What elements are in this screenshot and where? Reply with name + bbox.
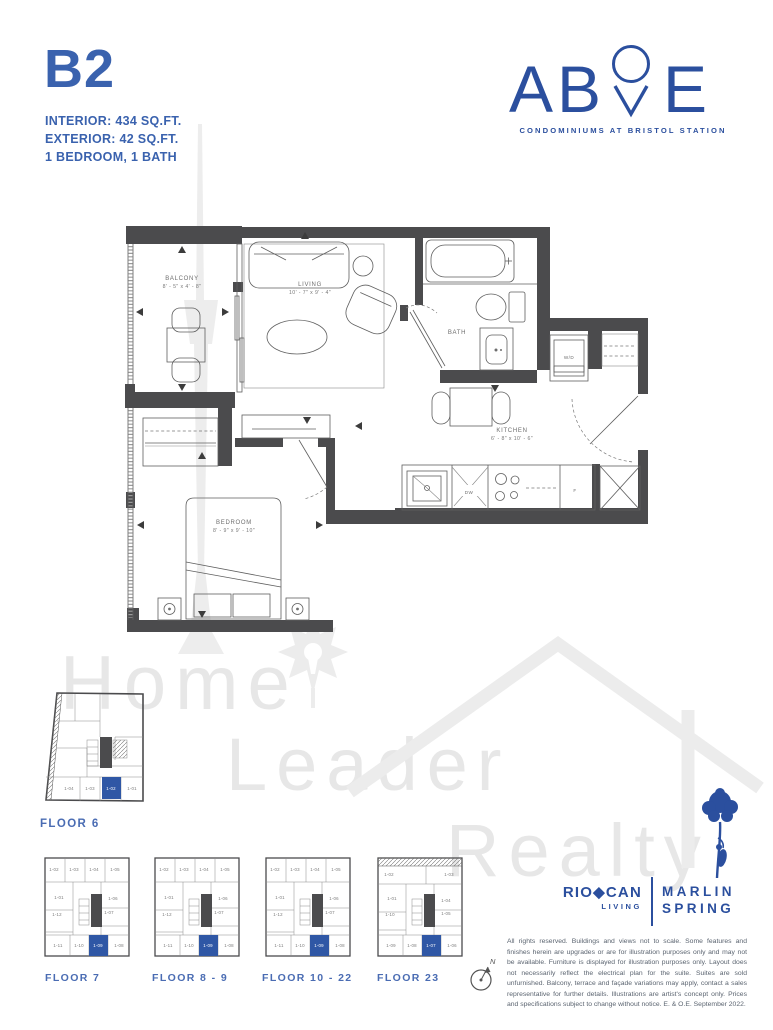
keyplan-unit: 1-06 <box>447 943 457 948</box>
keyplan-unit: 1-09 <box>203 943 213 948</box>
keyplan-unit: 1-03 <box>69 867 79 872</box>
keyplan-unit: 1-05 <box>110 867 120 872</box>
keyplan-unit: 1-03 <box>85 786 95 791</box>
keyplan-floor-10-22: 1-021-031-041-051-011-121-061-071-111-10… <box>264 856 352 958</box>
plan-walls <box>125 226 648 632</box>
keyplan-unit: 1-11 <box>274 943 284 948</box>
logo-letter-e: E <box>663 52 707 126</box>
kitchen-counter <box>402 465 595 510</box>
balcony-table-set <box>167 308 205 382</box>
keyplan-unit: 1-02 <box>270 867 280 872</box>
living-label: LIVING <box>298 282 322 288</box>
unit-exterior-sqft: EXTERIOR: 42 SQ.FT. <box>45 130 182 148</box>
sliding-door <box>235 244 244 392</box>
keyplan-floor-23-label: FLOOR 23 <box>377 972 440 984</box>
keyplan-unit: 1-10 <box>295 943 305 948</box>
bedroom-closet <box>143 418 218 466</box>
keyplan-unit: 1-10 <box>184 943 194 948</box>
nightstand-left <box>158 598 181 620</box>
keyplan-drawing: 1-021-031-041-051-011-121-061-071-111-10… <box>153 856 241 958</box>
keyplan-unit: 1-03 <box>444 872 454 877</box>
marlin-line1: MARLIN <box>662 883 735 900</box>
bed <box>186 498 281 619</box>
dining-table-set <box>432 388 510 426</box>
media-console <box>242 415 330 438</box>
marlin-line2: SPRING <box>662 900 735 917</box>
keyplan-unit: 1-11 <box>163 943 173 948</box>
unit-code: B2 <box>44 38 115 100</box>
tree-icon <box>696 786 744 880</box>
living-rug <box>244 244 384 388</box>
keyplan-unit: 1-06 <box>218 896 228 901</box>
coffee-table <box>267 320 327 354</box>
bath-door <box>406 305 445 368</box>
keyplan-unit-highlighted: 1-02 <box>106 786 116 791</box>
keyplan-floor-6: 1-04 1-03 1-02 1-01 <box>45 688 145 803</box>
kitchen-sink <box>407 471 447 506</box>
watermark-leader: Leader <box>226 728 510 802</box>
balcony-dims: 8' - 5" x 4' - 8" <box>163 284 202 290</box>
compass-north-label: N <box>490 957 496 966</box>
shaft-closet <box>600 466 640 510</box>
keyplan-unit: 1-04 <box>199 867 209 872</box>
riocan-diamond-icon: ◆ <box>593 884 606 901</box>
logo-letter-b: B <box>557 52 601 126</box>
keyplan-unit: 1-01 <box>275 895 285 900</box>
keyplan-unit: 1-01 <box>387 896 397 901</box>
keyplan-unit: 1-02 <box>159 867 169 872</box>
keyplan-drawing: 1-021-031-041-051-011-121-061-071-111-10… <box>264 856 352 958</box>
bedroom-door <box>299 440 327 499</box>
keyplan-floor-8-9: 1-021-031-041-051-011-121-061-071-111-10… <box>153 856 241 958</box>
keyplan-unit: 1-01 <box>54 895 64 900</box>
keyplan-unit: 1-12 <box>162 912 172 917</box>
bedroom-dims: 8' - 9" x 9' - 10" <box>213 528 255 534</box>
cooktop <box>496 474 520 501</box>
keyplan-unit: 1-02 <box>49 867 59 872</box>
armchair <box>342 281 401 338</box>
keyplan-unit: 1-01 <box>127 786 137 791</box>
riocan-living-logo: RIO◆CAN LIVING <box>538 883 642 911</box>
keyplan-floor-7: 1-021-031-041-051-011-121-061-071-111-10… <box>43 856 131 958</box>
keyplan-unit: 1-01 <box>164 895 174 900</box>
bathtub <box>426 240 514 282</box>
wd-label: W/D <box>564 355 574 360</box>
riocan-living: LIVING <box>538 902 642 911</box>
keyplan-unit: 1-11 <box>53 943 63 948</box>
kitchen-label: KITCHEN <box>496 428 527 434</box>
keyplan-unit: 1-07 <box>214 910 224 915</box>
compass-icon: N <box>462 952 506 998</box>
balcony-label: BALCONY <box>165 276 199 282</box>
keyplan-unit: 1-09 <box>386 943 396 948</box>
vanity-sink <box>480 328 513 370</box>
keyplan-unit: 1-08 <box>224 943 234 948</box>
legal-disclaimer: All rights reserved. Buildings and views… <box>507 937 747 1011</box>
keyplan-unit: 1-12 <box>273 912 283 917</box>
keyplan-unit: 1-09 <box>314 943 324 948</box>
keyplan-unit: 1-08 <box>114 943 124 948</box>
keyplan-floor-23: 1-021-031-011-101-041-051-091-081-071-06 <box>376 856 464 958</box>
toilet <box>476 292 525 322</box>
riocan-can: CAN <box>606 884 642 901</box>
keyplan-unit: 1-02 <box>384 872 394 877</box>
dishwasher-label: DW <box>465 490 474 495</box>
above-logo: A B E <box>505 40 740 128</box>
keyplan-unit: 1-05 <box>441 911 451 916</box>
riocan-rio: RIO <box>563 884 593 901</box>
keyplan-unit: 1-08 <box>335 943 345 948</box>
keyplan-drawing: 1-021-031-011-101-041-051-091-081-071-06 <box>376 856 464 958</box>
balcony-railing <box>128 244 133 384</box>
kitchen-dims: 6' - 8" x 10' - 6" <box>491 436 533 442</box>
keyplan-unit: 1-12 <box>52 912 62 917</box>
keyplan-unit: 1-04 <box>310 867 320 872</box>
unit-interior-sqft: INTERIOR: 434 SQ.FT. <box>45 112 182 130</box>
keyplan-unit: 1-07 <box>426 943 436 948</box>
keyplan-unit: 1-09 <box>93 943 103 948</box>
bedroom-label: BEDROOM <box>216 520 252 526</box>
bath-label: BATH <box>448 330 466 336</box>
marlin-spring-logo: MARLIN SPRING <box>662 883 735 917</box>
logo-letter-o-circle <box>614 47 649 82</box>
living-dims: 10' - 7" x 9' - 4" <box>289 290 331 296</box>
keyplan-unit: 1-10 <box>385 912 395 917</box>
keyplan-unit: 1-05 <box>220 867 230 872</box>
keyplan-unit: 1-03 <box>179 867 189 872</box>
logo-letter-a: A <box>509 52 553 126</box>
side-table <box>353 256 373 276</box>
keyplan-floor-8-9-label: FLOOR 8 - 9 <box>152 972 228 984</box>
keyplan-unit: 1-07 <box>325 910 335 915</box>
entry-door <box>572 396 638 462</box>
keyplan-floor-7-label: FLOOR 7 <box>45 972 100 984</box>
keyplan-drawing: 1-021-031-041-051-011-121-061-071-111-10… <box>43 856 131 958</box>
watermark-realty: Realty <box>446 814 710 888</box>
keyplan-unit: 1-06 <box>108 896 118 901</box>
floorplan-drawing: BALCONY 8' - 5" x 4' - 8" LIVING 10' - 7… <box>120 200 660 640</box>
keyplan-unit: 1-03 <box>290 867 300 872</box>
unit-bed-bath: 1 BEDROOM, 1 BATH <box>45 148 182 166</box>
unit-info: INTERIOR: 434 SQ.FT. EXTERIOR: 42 SQ.FT.… <box>45 112 182 166</box>
entry-closet <box>602 334 638 366</box>
keyplan-unit: 1-04 <box>64 786 74 791</box>
keyplan-floor-10-22-label: FLOOR 10 - 22 <box>262 972 353 984</box>
floorplan-flyer: Home Leader Realty B2 INTERIOR: 434 SQ.F… <box>0 0 773 1030</box>
logo-divider <box>651 877 653 926</box>
keyplan-unit: 1-04 <box>441 898 451 903</box>
fridge-label: F <box>573 488 576 493</box>
keyplan-floor-6-label: FLOOR 6 <box>40 818 100 830</box>
keyplan-unit: 1-04 <box>89 867 99 872</box>
keyplan-unit: 1-07 <box>104 910 114 915</box>
logo-letter-v <box>615 86 647 114</box>
keyplan-unit: 1-08 <box>407 943 417 948</box>
keyplan-unit: 1-10 <box>74 943 84 948</box>
keyplan-unit: 1-06 <box>329 896 339 901</box>
nightstand-right <box>286 598 309 620</box>
keyplan-unit: 1-05 <box>331 867 341 872</box>
bedroom-window <box>128 408 133 620</box>
